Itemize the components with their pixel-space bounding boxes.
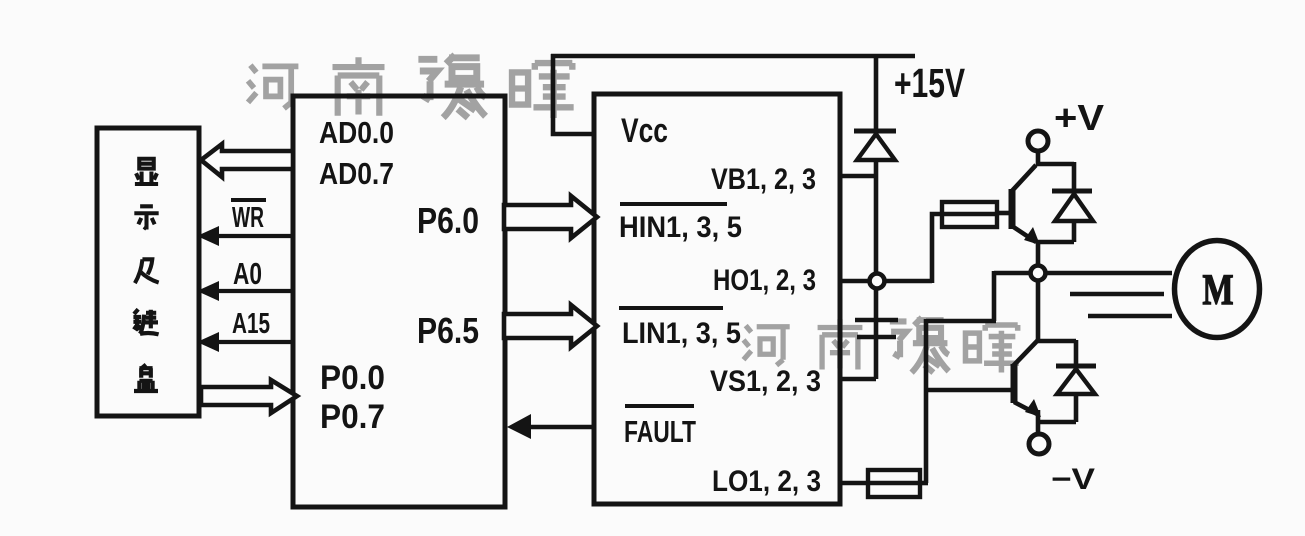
svg-text:P6.5: P6.5 [417, 310, 479, 351]
svg-text:M: M [1203, 267, 1234, 314]
svg-text:A0: A0 [233, 256, 262, 291]
svg-text:AD0.7: AD0.7 [319, 156, 394, 191]
svg-text:+V: +V [1054, 97, 1104, 138]
svg-text:LO1, 2, 3: LO1, 2, 3 [712, 465, 821, 498]
svg-text:P6.0: P6.0 [417, 200, 479, 241]
svg-text:LIN1, 3, 5: LIN1, 3, 5 [622, 317, 741, 350]
svg-text:−V: −V [1051, 463, 1095, 496]
svg-text:VS1, 2, 3: VS1, 2, 3 [710, 365, 821, 398]
svg-text:P0.7: P0.7 [320, 398, 385, 436]
svg-text:AD0.0: AD0.0 [319, 115, 394, 150]
svg-text:HO1, 2, 3: HO1, 2, 3 [713, 264, 816, 297]
svg-text:P0.0: P0.0 [320, 359, 385, 397]
svg-text:A15: A15 [232, 308, 270, 340]
svg-text:HIN1, 3, 5: HIN1, 3, 5 [619, 211, 742, 244]
svg-text:FAULT: FAULT [624, 414, 696, 449]
svg-text:+15V: +15V [894, 60, 965, 106]
svg-text:Vcc: Vcc [621, 112, 668, 150]
svg-text:VB1, 2, 3: VB1, 2, 3 [711, 163, 816, 196]
svg-text:WR: WR [232, 202, 264, 234]
